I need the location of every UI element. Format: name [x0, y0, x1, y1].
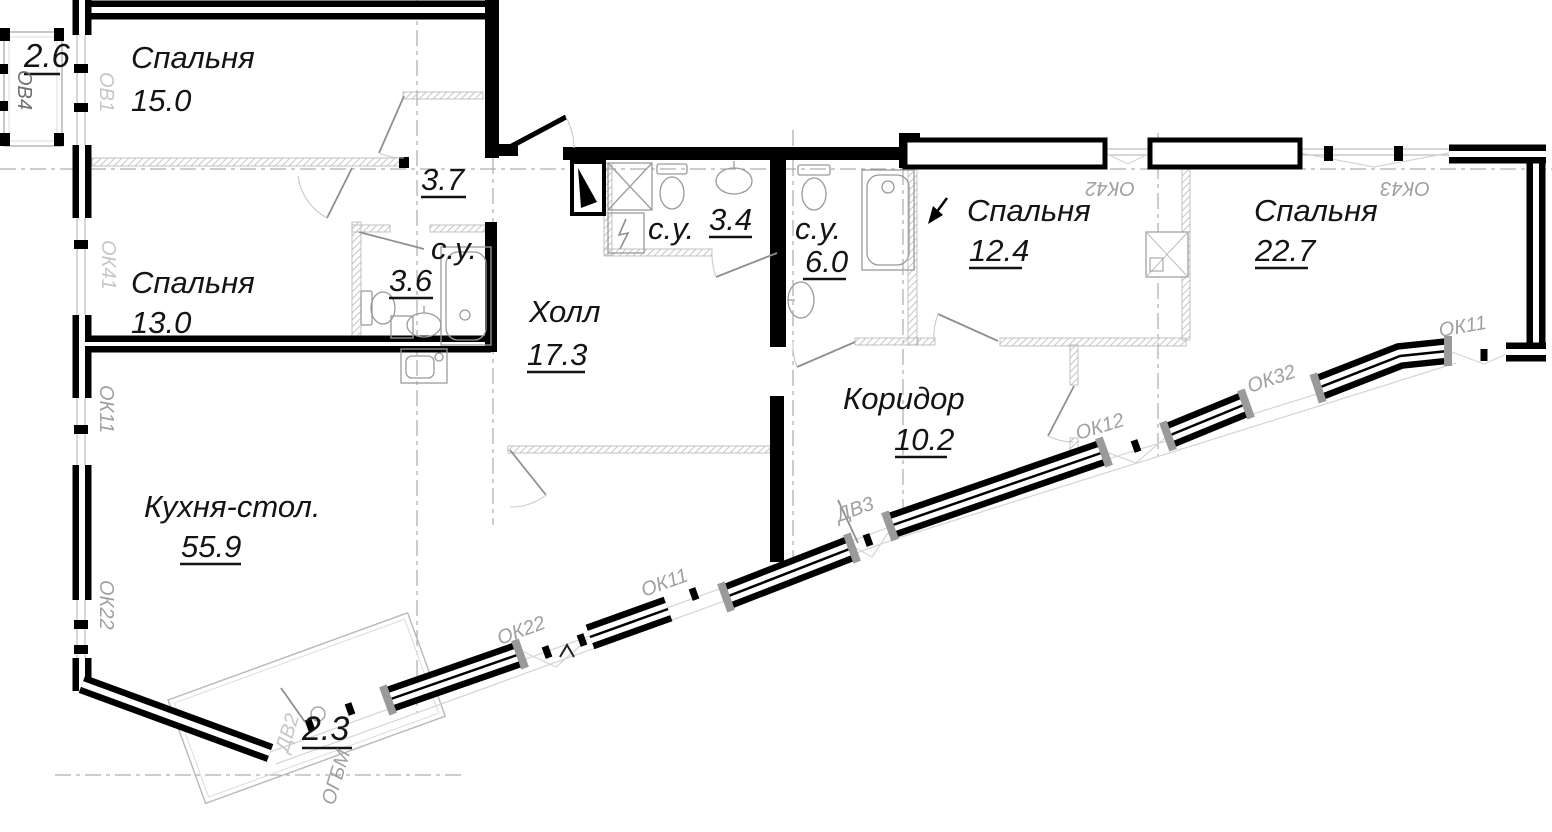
sink-icon [716, 161, 752, 194]
room-label-hall-name: Холл [528, 294, 601, 329]
room-label-kitchen-name: Кухня-стол. [144, 489, 321, 524]
floor-plan: Спальня 15.0 Спальня 13.0 Кухня-стол. 55… [0, 0, 1552, 832]
electrical-panel-icon [608, 213, 644, 253]
opening-label-ok22-left: ОК22 [95, 580, 117, 630]
opening-labels: ОВ4 ОВ1 ОК41 ОК11 ОК22 ОК42 ОК43 ОК11 ОК… [13, 70, 1488, 807]
interior-walls [485, 0, 920, 562]
kitchen-sink-icon [401, 349, 447, 383]
room-label-bath36-area: 3.6 [389, 263, 433, 298]
room-label-bed124-name: Спальня [967, 193, 1091, 228]
opening-label-ok43: ОК43 [1380, 177, 1430, 199]
opening-label-dv3: ДВ3 [831, 493, 877, 528]
room-label-bath60-name: с.у. [795, 211, 841, 246]
toilet-icon [657, 164, 687, 209]
opening-label-ok32: ОК32 [1244, 361, 1298, 398]
shower-icon [608, 163, 652, 210]
room-label-entry-area: 3.7 [421, 162, 466, 197]
room-label-bed227-name: Спальня [1254, 193, 1378, 228]
room-label-kitchen-area: 55.9 [181, 529, 241, 564]
room-label-bath36-name: с.у. [431, 231, 477, 266]
entrance-arrow-icon [928, 198, 947, 224]
opening-label-ok22-bottom: ОК22 [494, 612, 548, 650]
opening-label-dv2: ДВ2 [271, 711, 304, 756]
floor-plan-drawing: Спальня 15.0 Спальня 13.0 Кухня-стол. 55… [0, 0, 1552, 832]
room-label-bath34-area: 3.4 [709, 202, 752, 237]
sink-icon [407, 306, 441, 337]
opening-label-ok42: ОК42 [1085, 177, 1135, 199]
room-label-bed227-area: 22.7 [1254, 233, 1317, 268]
bathtub-icon [862, 170, 914, 270]
room-label-corridor-area: 10.2 [894, 422, 954, 457]
room-label-bed15-name: Спальня [131, 40, 255, 75]
room-label-bed13-area: 13.0 [131, 305, 191, 340]
room-label-bed15-area: 15.0 [131, 83, 191, 118]
vent-mark-icon [560, 645, 574, 657]
room-label-bed124-area: 12.4 [969, 233, 1029, 268]
room-label-bed13-name: Спальня [131, 265, 255, 300]
room-label-bath60-area: 6.0 [805, 244, 848, 279]
opening-label-ok11-right: ОК11 [1437, 312, 1488, 342]
room-label-hall-area: 17.3 [527, 337, 587, 372]
opening-label-ok11-left: ОК11 [95, 385, 117, 433]
sink-icon [788, 282, 814, 318]
electrical-cabinet-icon [572, 162, 604, 214]
opening-label-ok11-bottom: ОК11 [638, 565, 691, 602]
opening-label-ov4: ОВ4 [13, 70, 35, 110]
vent-shaft [1146, 232, 1188, 277]
room-label-balcony-top-area: 2.6 [23, 37, 71, 74]
room-label-bath34-name: с.у. [648, 211, 694, 246]
opening-label-ogbm: ОГБМ [318, 747, 356, 807]
entry-door-leaf [508, 117, 566, 148]
room-label-balcony-bottom-area: 2.3 [301, 710, 349, 748]
room-label-corridor-name: Коридор [843, 381, 965, 416]
toilet-icon [798, 165, 830, 210]
opening-label-ov1: ОВ1 [95, 72, 117, 112]
opening-label-ok41: ОК41 [97, 240, 119, 290]
